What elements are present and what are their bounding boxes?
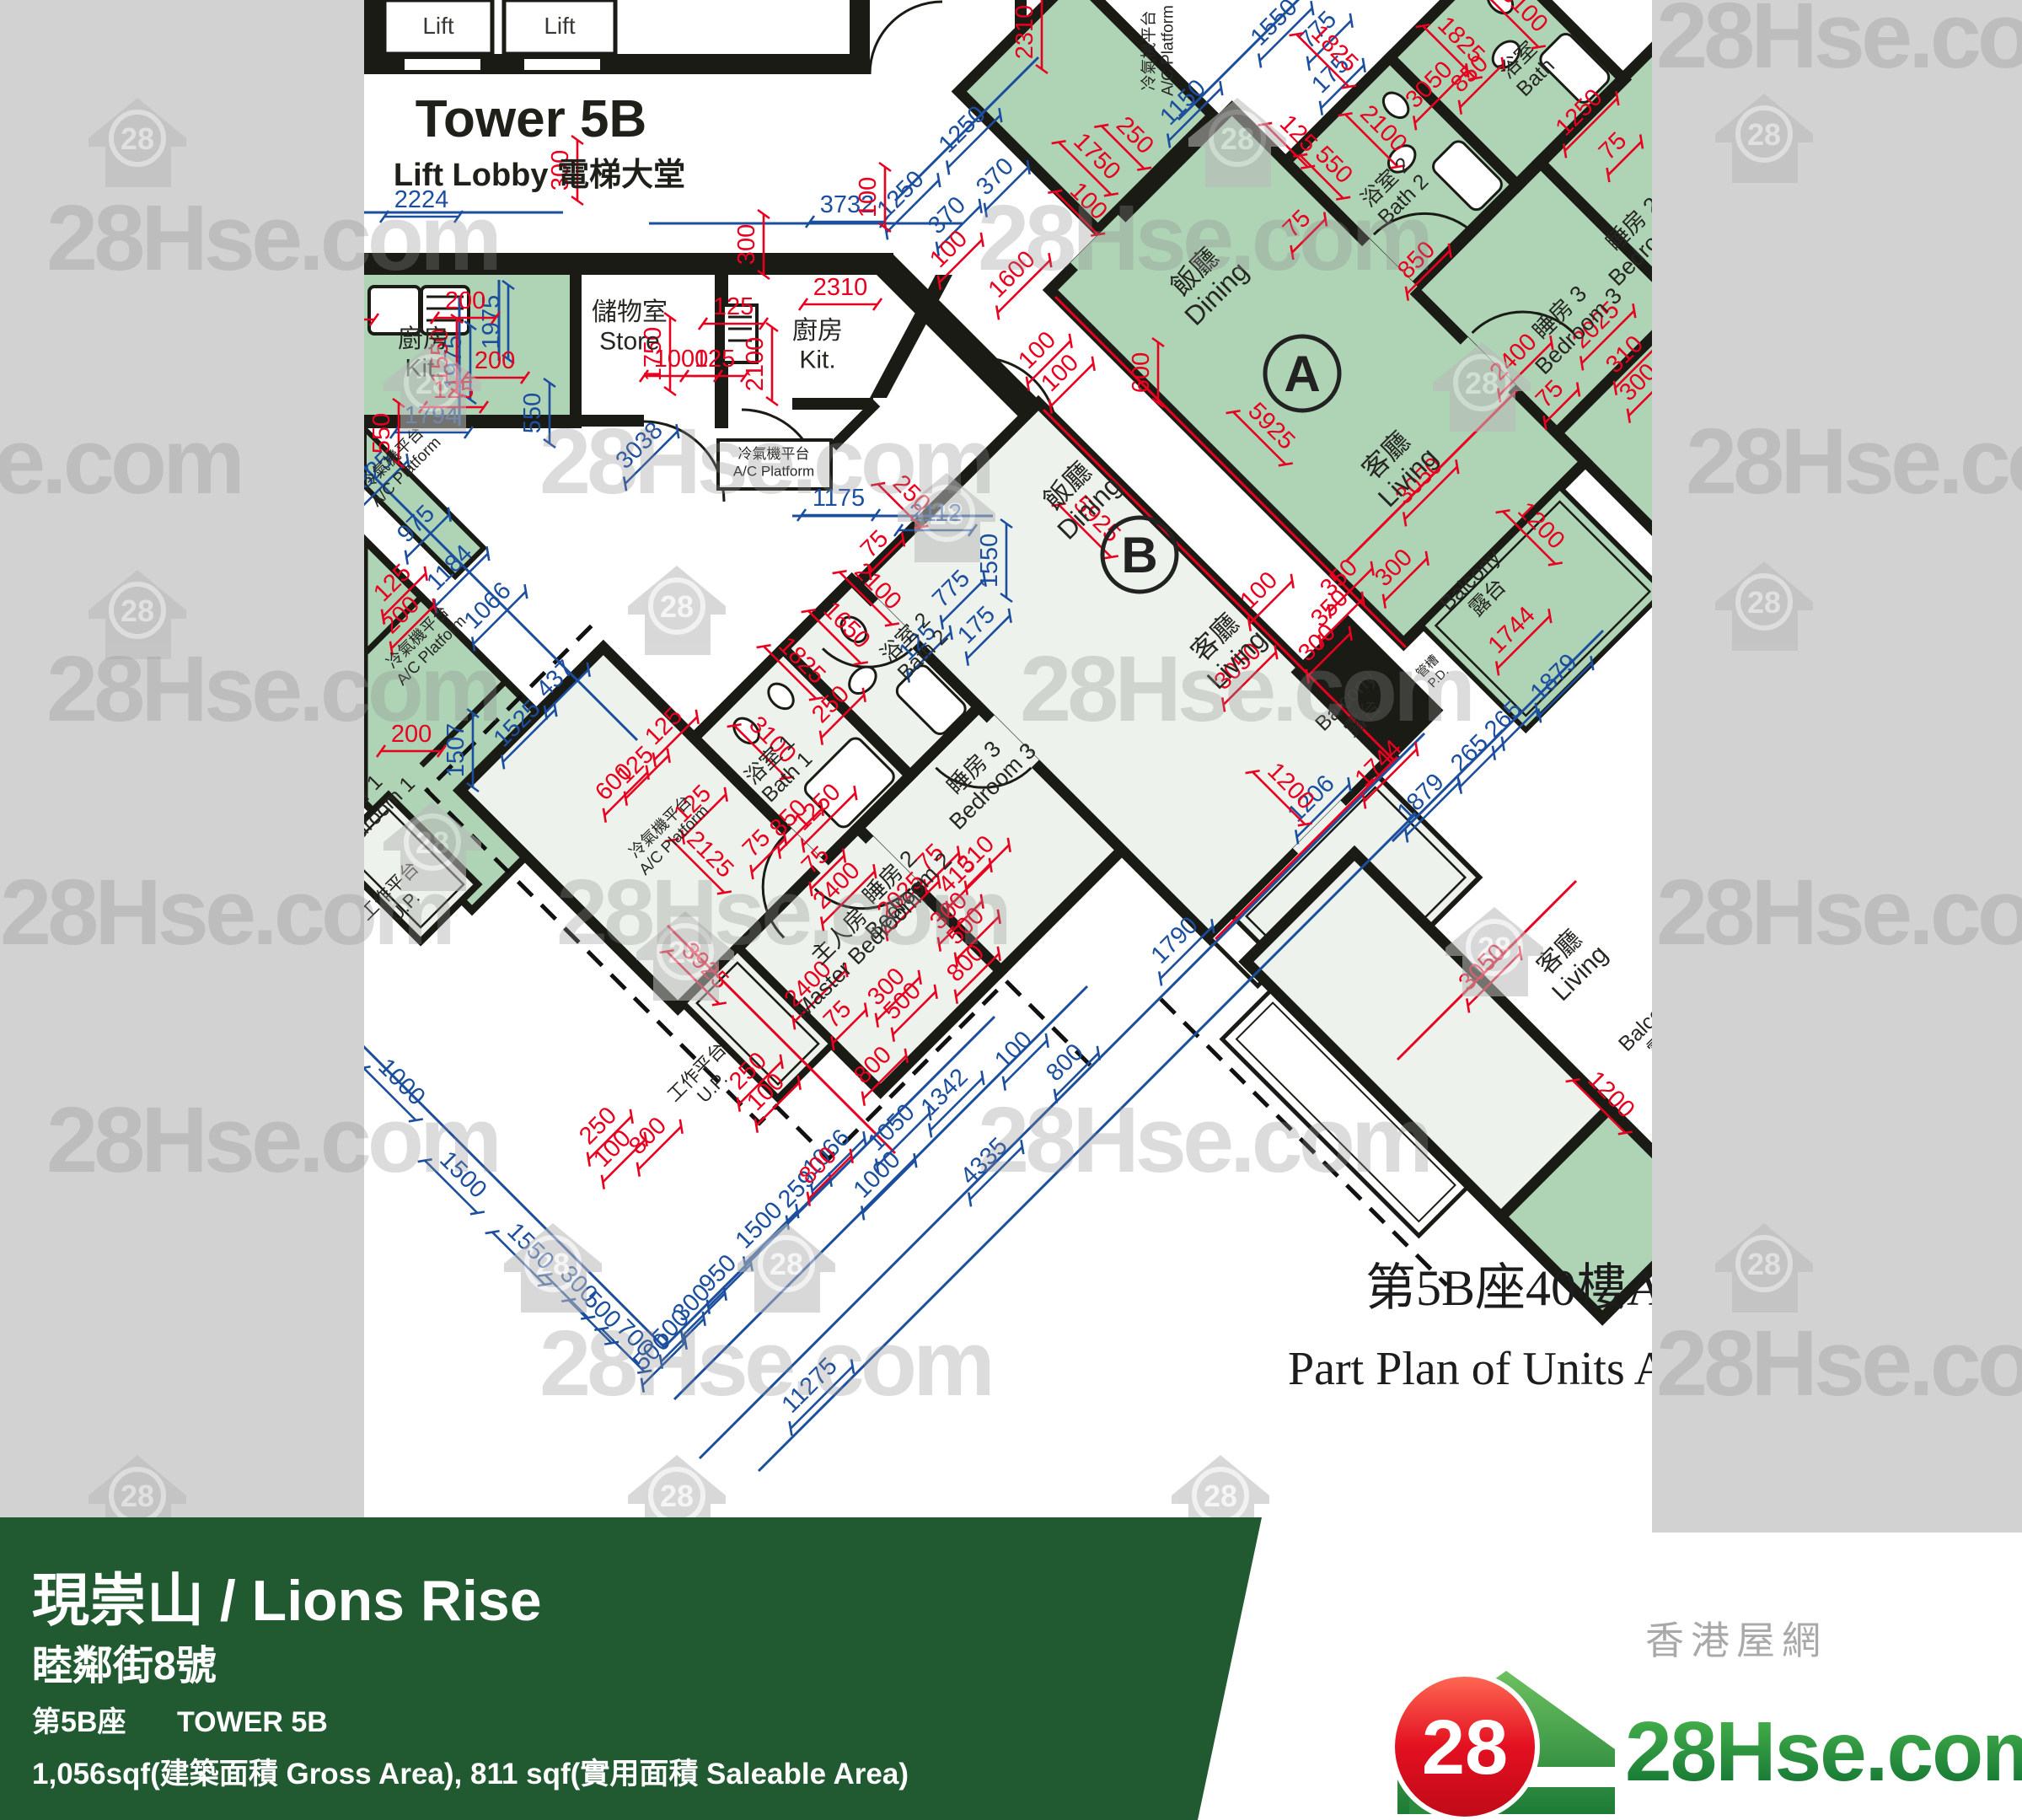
room-label: 廚房Kit.: [792, 317, 843, 373]
watermark-text: 28Hse.com: [0, 861, 452, 964]
svg-text:28: 28: [1747, 585, 1781, 620]
svg-text:28: 28: [1465, 366, 1499, 400]
watermark-text: 28Hse.com: [539, 1312, 991, 1415]
watermark-text: 28Hse.com: [1020, 637, 1472, 741]
watermark-text: 28Hse.com: [1656, 861, 2022, 964]
watermark-text: 28Hse.com: [556, 861, 1008, 964]
svg-text:100: 100: [855, 177, 882, 217]
svg-text:28: 28: [660, 1479, 694, 1513]
logo-name: 28Hse.com: [1625, 1705, 2022, 1799]
svg-text:28: 28: [660, 589, 694, 624]
estate-tower: 第5B座TOWER 5B: [32, 1706, 328, 1738]
lift-label: Lift: [544, 13, 576, 39]
svg-text:28: 28: [121, 1479, 154, 1513]
svg-text:125: 125: [695, 346, 735, 373]
watermark-text: 28Hse.com: [539, 410, 991, 513]
svg-text:28: 28: [1747, 1247, 1781, 1281]
watermark-text: 28Hse.com: [46, 186, 498, 290]
svg-text:28: 28: [1220, 121, 1254, 156]
svg-text:28: 28: [416, 366, 449, 400]
svg-text:28: 28: [121, 593, 154, 628]
floorplan-page: 2224373219751975550179412503701250370155…: [0, 0, 2022, 1820]
svg-text:28: 28: [121, 121, 154, 156]
svg-text:B: B: [1121, 527, 1157, 583]
svg-text:A: A: [1284, 346, 1320, 402]
watermark-text: 28Hse.com: [1656, 0, 2022, 88]
svg-text:28: 28: [1747, 117, 1781, 152]
svg-text:2310: 2310: [813, 274, 868, 301]
svg-text:125: 125: [713, 293, 754, 320]
logo-tagline: 香港屋網: [1645, 1619, 1827, 1662]
svg-text:28: 28: [770, 1247, 803, 1281]
watermark-text: 28Hse.com: [978, 186, 1429, 290]
watermark-text: 28Hse.com: [1686, 410, 2022, 513]
svg-text:28: 28: [536, 1247, 570, 1281]
svg-text:200: 200: [475, 347, 515, 374]
svg-text:300: 300: [733, 224, 760, 265]
watermark-text: 28Hse.com: [46, 1088, 498, 1192]
watermark-text: 28Hse.com: [978, 1088, 1429, 1192]
svg-text:2310: 2310: [1011, 5, 1038, 60]
svg-text:600: 600: [1128, 352, 1155, 393]
caption-en: Part Plan of Units A: [1288, 1343, 1669, 1395]
footer-banner: 現崇山 / Lions Rise 睦鄰街8號 第5B座TOWER 5B 1,05…: [0, 1517, 1262, 1820]
watermark-text: 28Hse.com: [1656, 1312, 2022, 1415]
svg-text:2100: 2100: [742, 337, 769, 392]
svg-text:200: 200: [445, 287, 485, 314]
estate-area: 1,056sqf(建築面積 Gross Area), 811 sqf(實用面積 …: [32, 1757, 909, 1790]
watermark-text: 28Hse.com: [0, 410, 241, 513]
svg-text:廚房Kit.: 廚房Kit.: [792, 317, 843, 373]
logo-badge-number: 28: [1422, 1705, 1508, 1790]
room-label: 儲物室Store: [592, 298, 668, 355]
watermark-text: 28Hse.com: [46, 637, 498, 741]
lift-label: Lift: [422, 13, 454, 39]
svg-text:28: 28: [416, 825, 449, 860]
svg-text:28: 28: [1204, 1479, 1237, 1513]
svg-text:28: 28: [1478, 931, 1511, 965]
right-margin: [1652, 0, 2022, 1533]
estate-title: 現崇山 / Lions Rise: [32, 1569, 542, 1633]
svg-text:儲物室Store: 儲物室Store: [592, 298, 668, 355]
estate-address: 睦鄰街8號: [32, 1644, 217, 1688]
caption-zh: 第5B座40樓A: [1365, 1260, 1663, 1316]
plan-title: Tower 5B: [416, 90, 646, 148]
